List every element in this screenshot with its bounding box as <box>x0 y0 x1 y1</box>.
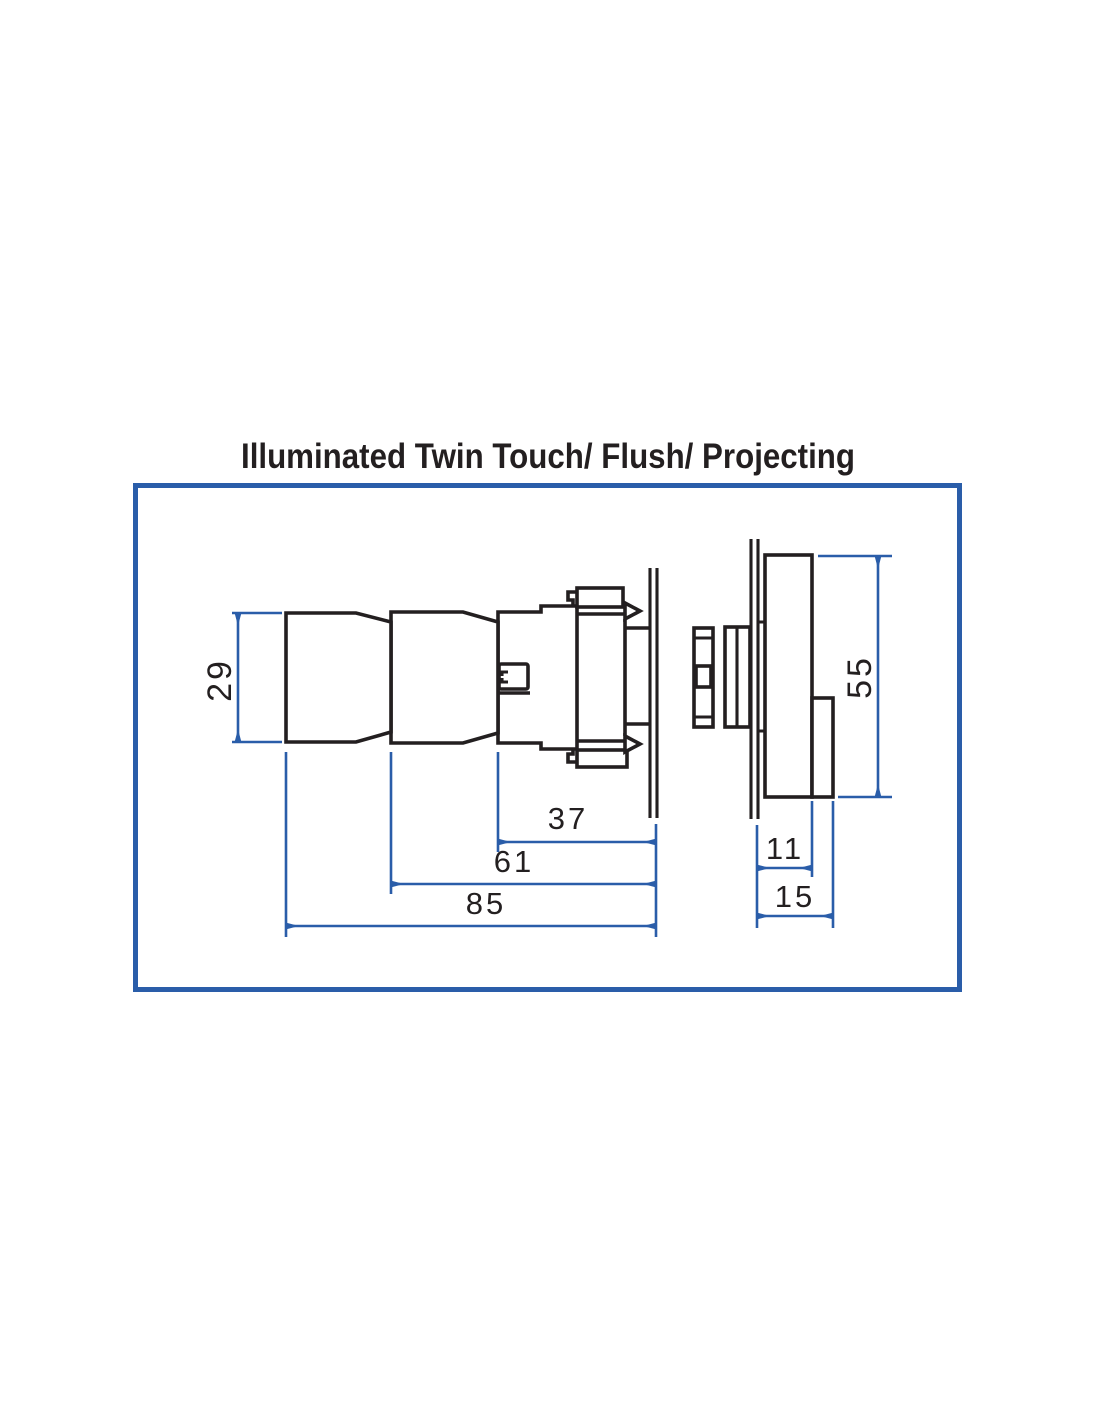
operator-panel-neck <box>625 619 651 736</box>
page-title: Illuminated Twin Touch/ Flush/ Projectin… <box>241 437 855 476</box>
dim-61-label: 61 <box>494 844 534 879</box>
operator-latch-arrow-bottom <box>625 736 640 752</box>
operator-latch-arms <box>577 614 625 741</box>
dim-85-label: 85 <box>466 886 506 921</box>
head-bracket-window <box>696 666 711 687</box>
dim-11-label: 11 <box>766 831 804 866</box>
left-view-operator-unit <box>286 568 657 818</box>
right-view-rear-unit <box>694 539 833 819</box>
operator-bottom-lug <box>577 750 627 767</box>
page-root: Illuminated Twin Touch/ Flush/ Projectin… <box>0 0 1100 1422</box>
dimension-operator-height: 29 <box>201 613 282 742</box>
operator-top-lug <box>577 588 623 607</box>
dim-15-label: 15 <box>775 879 815 914</box>
rear-step-block <box>812 698 833 797</box>
rear-housing-plate <box>765 555 812 797</box>
dim-55-label: 55 <box>841 655 879 699</box>
dim-29-label: 29 <box>201 658 239 702</box>
technical-drawing: Illuminated Twin Touch/ Flush/ Projectin… <box>0 0 1100 1422</box>
dim-29-extension-lines <box>232 613 282 742</box>
operator-button-cap <box>286 613 391 742</box>
lamp-clip-detail <box>499 664 528 689</box>
operator-body-segment <box>391 612 498 743</box>
dimension-rear-depths: 11 15 <box>757 801 833 928</box>
dim-37-label: 37 <box>548 801 588 836</box>
operator-latch-arrow-top <box>625 603 640 619</box>
left-panel-lines <box>650 568 657 818</box>
right-panel-lines <box>751 539 758 819</box>
dimension-depths: 37 61 85 <box>286 752 656 937</box>
